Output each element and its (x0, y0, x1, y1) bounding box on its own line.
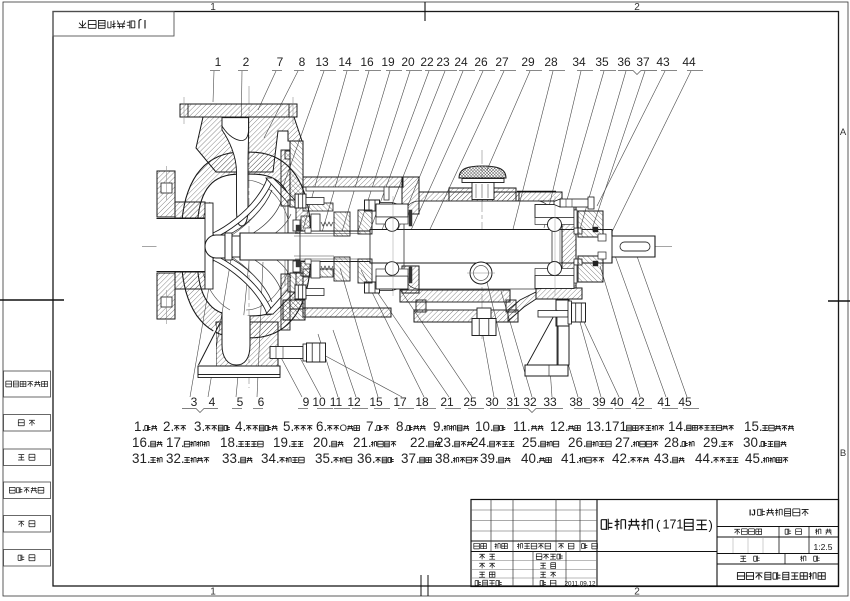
svg-text:41: 41 (657, 395, 671, 409)
svg-text:28: 28 (544, 55, 558, 69)
svg-text:22.: 22. (410, 435, 429, 450)
svg-text:42.: 42. (612, 451, 631, 466)
svg-text:1: 1 (210, 587, 216, 598)
svg-text:12: 12 (347, 395, 361, 409)
svg-text:5.: 5. (283, 419, 294, 434)
svg-text:4: 4 (209, 395, 216, 409)
svg-text:13.171: 13.171 (586, 419, 627, 434)
svg-text:7: 7 (277, 55, 284, 69)
svg-text:): ) (709, 518, 713, 533)
svg-text:42: 42 (631, 395, 645, 409)
svg-text:29.: 29. (703, 435, 722, 450)
svg-text:45: 45 (678, 395, 692, 409)
svg-text:6.: 6. (316, 419, 327, 434)
svg-text:3: 3 (191, 395, 198, 409)
svg-text:39.: 39. (480, 451, 499, 466)
svg-text:18.: 18. (220, 435, 239, 450)
svg-text:32.: 32. (166, 451, 185, 466)
svg-text:45.: 45. (745, 451, 764, 466)
svg-text:10: 10 (312, 395, 326, 409)
svg-text:29: 29 (521, 55, 535, 69)
svg-text:43.: 43. (654, 451, 673, 466)
svg-text:1: 1 (215, 55, 222, 69)
svg-text:9.: 9. (433, 419, 444, 434)
svg-text:6: 6 (258, 395, 265, 409)
svg-text:(: ( (656, 518, 661, 533)
svg-text:40: 40 (610, 395, 624, 409)
svg-text:38: 38 (569, 395, 583, 409)
svg-text:1:2.5: 1:2.5 (814, 542, 833, 552)
svg-text:10.: 10. (475, 419, 494, 434)
svg-text:41.: 41. (561, 451, 580, 466)
svg-text:4.: 4. (235, 419, 246, 434)
svg-text:27: 27 (495, 55, 509, 69)
svg-text:25.: 25. (522, 435, 541, 450)
svg-text:3.: 3. (194, 419, 205, 434)
svg-text:13: 13 (315, 55, 329, 69)
svg-text:34: 34 (572, 55, 586, 69)
svg-text:18: 18 (415, 395, 429, 409)
svg-text:8.: 8. (396, 419, 407, 434)
svg-text:14: 14 (338, 55, 352, 69)
svg-text:2: 2 (243, 55, 250, 69)
svg-text:38.: 38. (435, 451, 454, 466)
svg-text:17: 17 (393, 395, 407, 409)
svg-text:20: 20 (401, 55, 415, 69)
svg-text:37.: 37. (401, 451, 420, 466)
svg-text:8: 8 (299, 55, 306, 69)
svg-text:16: 16 (360, 55, 374, 69)
svg-text:27.: 27. (615, 435, 634, 450)
svg-text:5: 5 (237, 395, 244, 409)
svg-text:33: 33 (543, 395, 557, 409)
svg-text:19: 19 (381, 55, 395, 69)
svg-text:20.: 20. (313, 435, 332, 450)
svg-text:2.: 2. (163, 419, 174, 434)
svg-text:15.: 15. (744, 419, 763, 434)
svg-text:28.: 28. (664, 435, 683, 450)
svg-text:171: 171 (663, 518, 684, 532)
svg-text:19.: 19. (273, 435, 292, 450)
svg-text:1: 1 (210, 2, 216, 13)
svg-text:O: O (340, 423, 347, 434)
svg-text:36.: 36. (357, 451, 376, 466)
svg-text:26: 26 (474, 55, 488, 69)
svg-text:32: 32 (523, 395, 537, 409)
svg-text:23.: 23. (436, 435, 455, 450)
svg-text:21.: 21. (353, 435, 372, 450)
svg-text:31: 31 (506, 395, 520, 409)
svg-text:44.: 44. (695, 451, 714, 466)
svg-text:34.: 34. (261, 451, 280, 466)
svg-text:39: 39 (592, 395, 606, 409)
svg-text:24: 24 (454, 55, 468, 69)
svg-text:1.: 1. (134, 419, 145, 434)
svg-text:36: 36 (617, 55, 631, 69)
svg-text:9: 9 (303, 395, 310, 409)
svg-text:24.: 24. (471, 435, 490, 450)
svg-text:33.: 33. (222, 451, 241, 466)
svg-text:22: 22 (420, 55, 434, 69)
svg-text:15: 15 (369, 395, 383, 409)
svg-text:12.: 12. (550, 419, 569, 434)
svg-text:2011.09.12: 2011.09.12 (564, 581, 596, 588)
svg-text:IJ: IJ (749, 509, 756, 518)
svg-text:30.: 30. (743, 435, 762, 450)
svg-text:2: 2 (634, 2, 640, 13)
svg-text:35: 35 (595, 55, 609, 69)
svg-text:17.: 17. (166, 435, 185, 450)
svg-text:11: 11 (330, 395, 343, 409)
svg-text:B: B (840, 448, 846, 459)
svg-text:23: 23 (436, 55, 450, 69)
svg-text:7.: 7. (366, 419, 377, 434)
svg-text:26.: 26. (568, 435, 587, 450)
svg-text:44: 44 (682, 55, 696, 69)
svg-text:11.: 11. (513, 419, 531, 434)
svg-text:2: 2 (634, 587, 640, 598)
svg-text:43: 43 (656, 55, 670, 69)
svg-text:16.: 16. (132, 435, 151, 450)
svg-text:35.: 35. (315, 451, 334, 466)
svg-text:40.: 40. (521, 451, 540, 466)
svg-text:21: 21 (440, 395, 454, 409)
svg-text:37: 37 (636, 55, 650, 69)
svg-text:A: A (840, 127, 847, 138)
svg-text:14.: 14. (668, 419, 687, 434)
svg-text:30: 30 (485, 395, 499, 409)
svg-text:25: 25 (463, 395, 477, 409)
svg-text:31.: 31. (132, 451, 151, 466)
